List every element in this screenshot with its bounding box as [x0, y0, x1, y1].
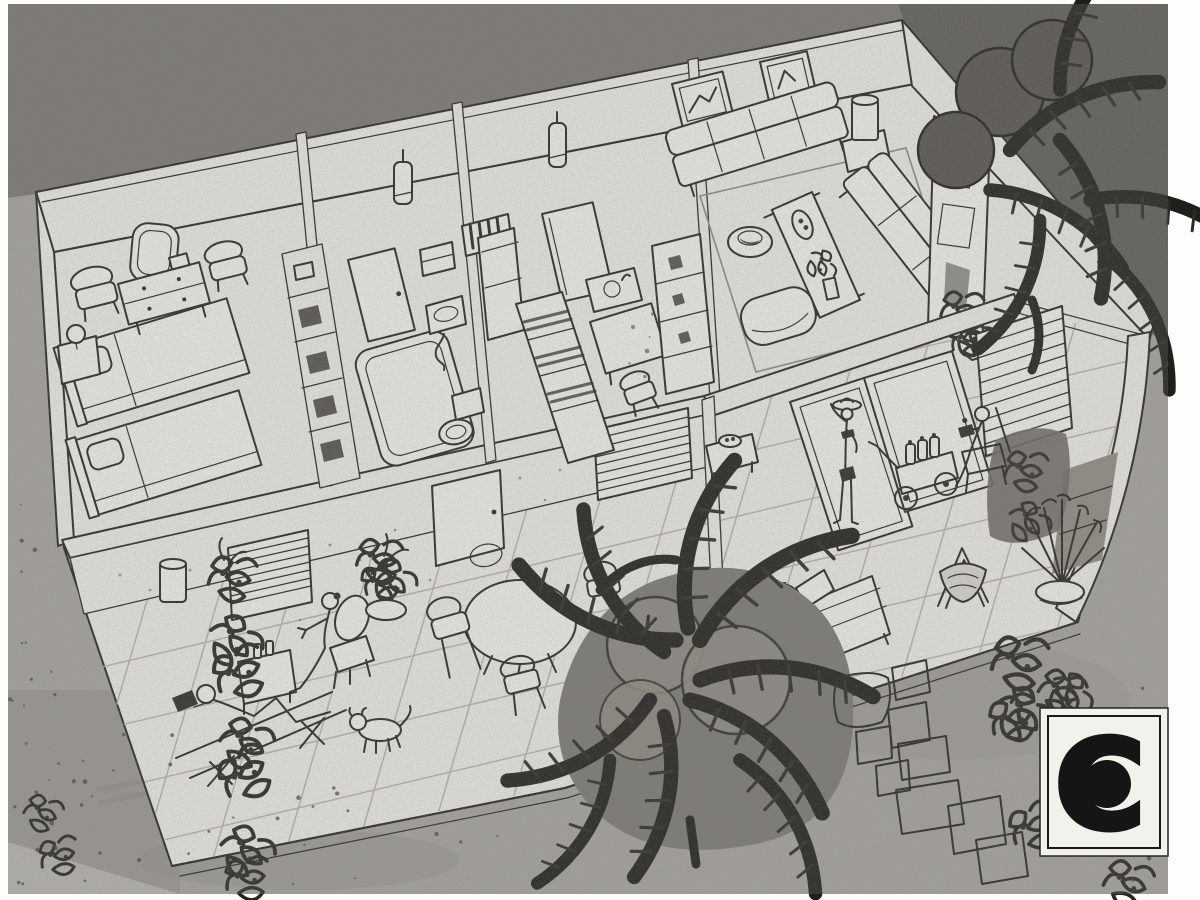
publisher-logo: C [1040, 708, 1168, 858]
cutaway-house-illustration: C [0, 0, 1200, 900]
logo-dot [1083, 760, 1131, 808]
scanned-newspaper-page: C [0, 0, 1200, 900]
scan-grain-overlay [8, 4, 1168, 894]
